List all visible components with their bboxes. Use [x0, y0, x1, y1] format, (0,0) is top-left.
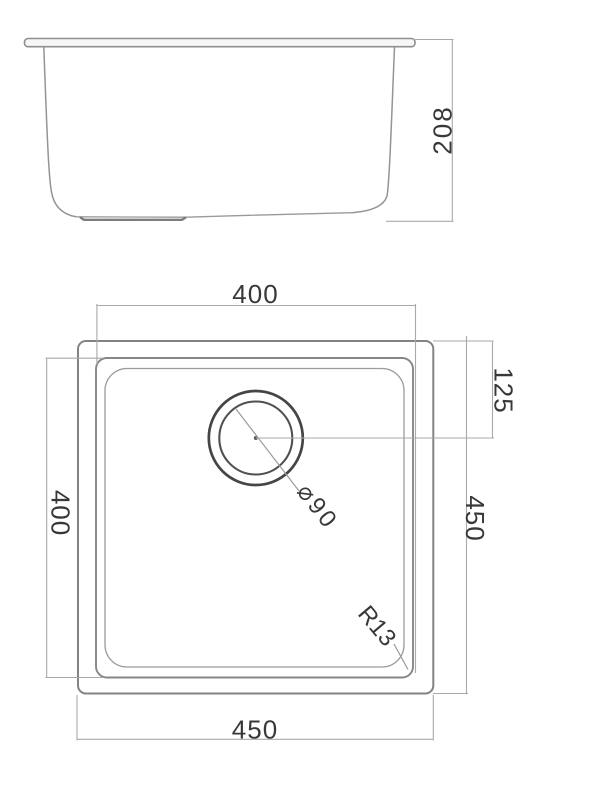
svg-text:208: 208: [428, 105, 458, 154]
svg-text:450: 450: [232, 715, 278, 745]
svg-text:450: 450: [460, 495, 490, 541]
svg-text:125: 125: [489, 367, 519, 413]
svg-text:400: 400: [46, 490, 76, 536]
svg-text:400: 400: [232, 279, 278, 309]
